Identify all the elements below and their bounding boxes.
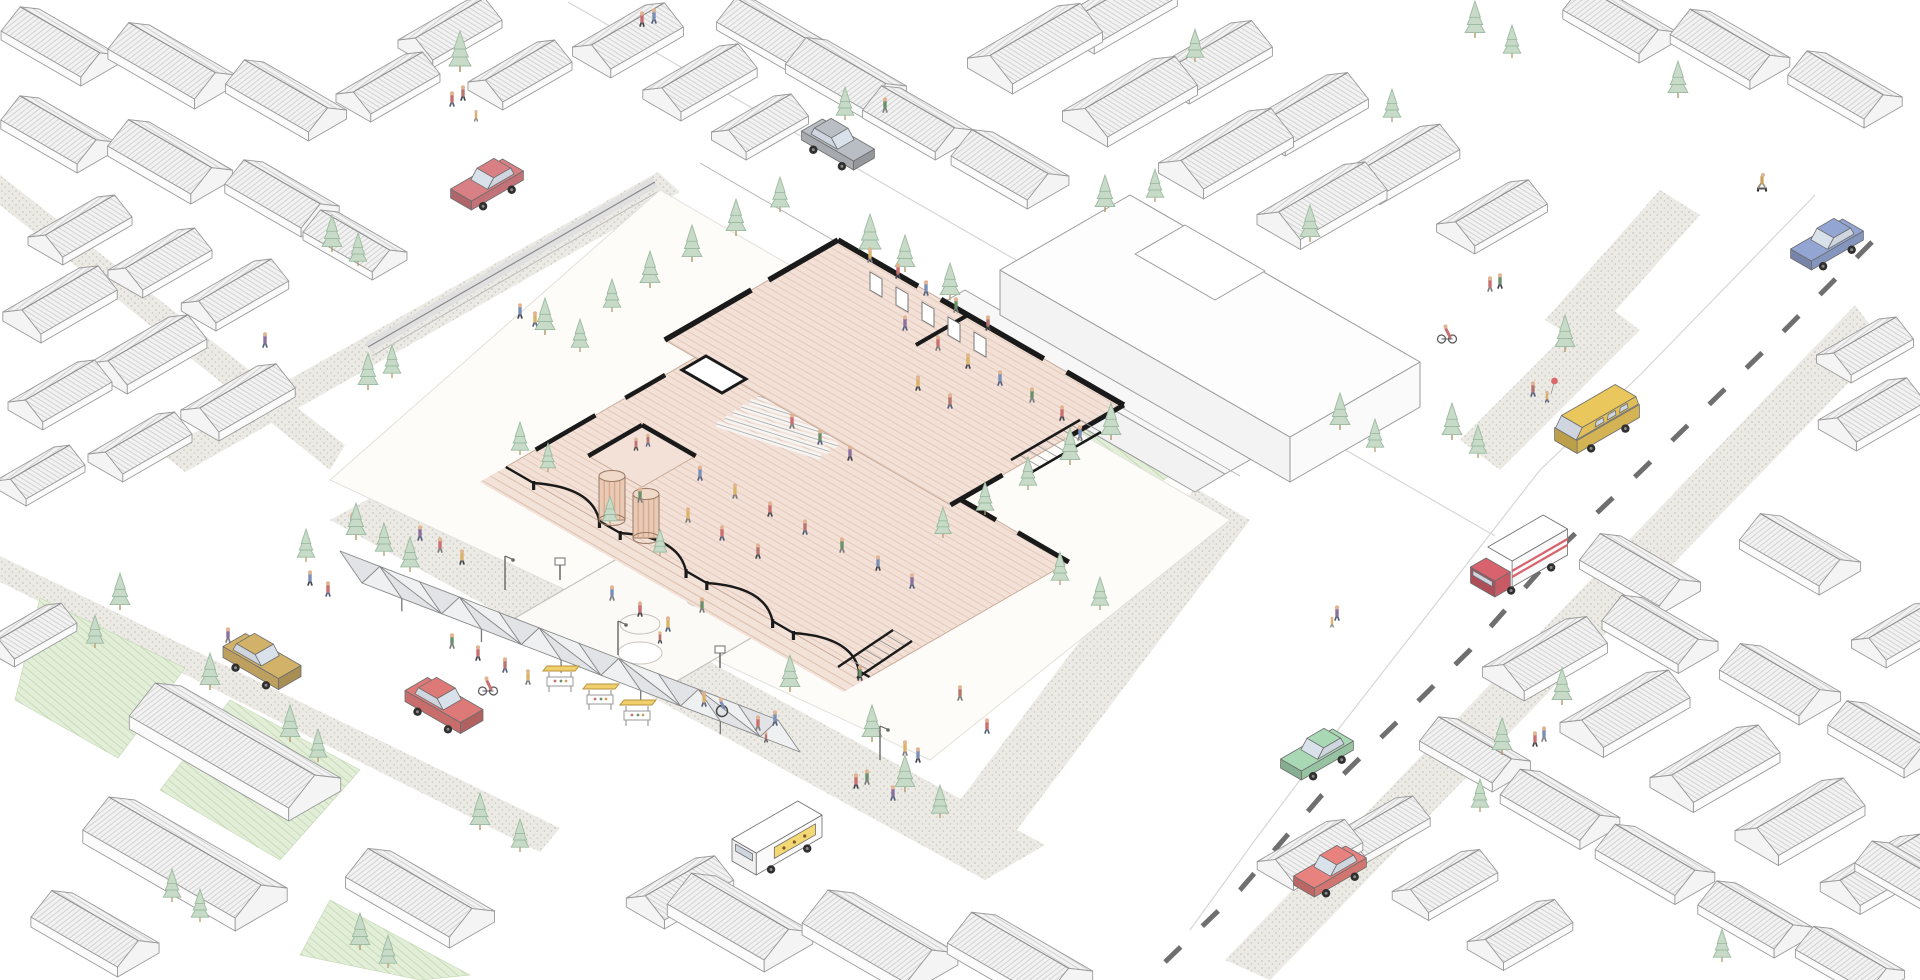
axonometric-site-drawing [0, 0, 1920, 980]
site-plan-canvas [0, 0, 1920, 980]
round-tower [633, 489, 659, 544]
